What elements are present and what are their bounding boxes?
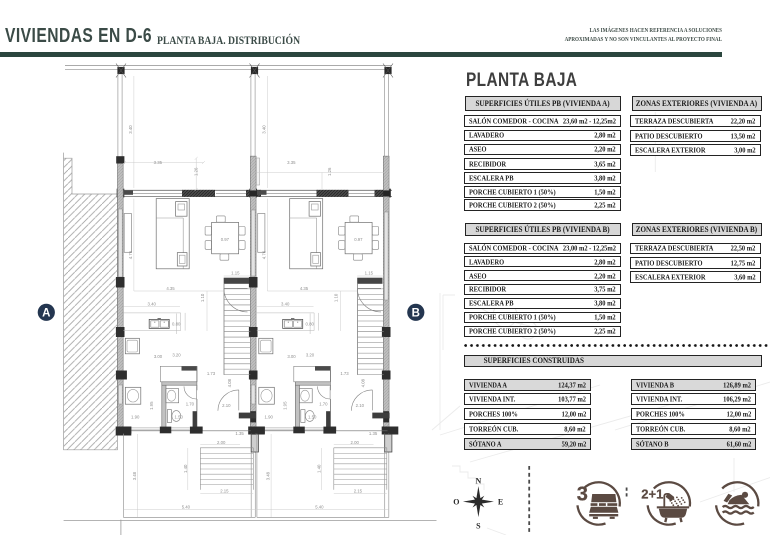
svg-text:5.40: 5.40: [182, 504, 191, 509]
svg-text:2.00: 2.00: [351, 440, 360, 445]
svg-text:S: S: [476, 522, 481, 531]
svg-text:1.73: 1.73: [207, 371, 216, 376]
svg-text:N: N: [476, 477, 482, 486]
svg-text:4.76: 4.76: [262, 250, 267, 259]
svg-text:3.40: 3.40: [128, 125, 133, 134]
svg-text:0.97: 0.97: [221, 237, 230, 242]
svg-text:1.73: 1.73: [340, 371, 349, 376]
svg-text:1.26: 1.26: [327, 167, 332, 176]
svg-text:1.40: 1.40: [183, 464, 188, 473]
svg-text:B: B: [412, 308, 420, 320]
svg-text:1.50: 1.50: [175, 414, 184, 419]
svg-text:4.08: 4.08: [361, 378, 366, 387]
svg-text:3: 3: [577, 483, 588, 505]
svg-text:3.20: 3.20: [172, 352, 181, 357]
svg-text:2+1: 2+1: [641, 486, 663, 501]
svg-text:1.50: 1.50: [308, 414, 317, 419]
svg-text:1.10: 1.10: [333, 293, 338, 302]
svg-text:1.70: 1.70: [186, 402, 195, 407]
svg-text:3.35: 3.35: [154, 160, 163, 165]
svg-text:1.70: 1.70: [319, 402, 328, 407]
svg-text:4.35: 4.35: [166, 286, 175, 291]
svg-text:3.00: 3.00: [287, 354, 296, 359]
svg-text:A: A: [42, 308, 50, 320]
svg-text:1.90: 1.90: [265, 414, 274, 419]
svg-text:2.10: 2.10: [356, 403, 365, 408]
svg-text:1.40: 1.40: [317, 464, 322, 473]
svg-text:2.10: 2.10: [222, 403, 231, 408]
svg-text:3.40: 3.40: [281, 301, 290, 306]
svg-text:3.00: 3.00: [154, 354, 163, 359]
svg-text:1.35: 1.35: [235, 431, 244, 436]
svg-text:3.20: 3.20: [306, 352, 315, 357]
svg-text:5.40: 5.40: [315, 504, 324, 509]
svg-text:1.95: 1.95: [283, 401, 288, 410]
svg-text:1.35: 1.35: [369, 431, 378, 436]
svg-text:2.15: 2.15: [354, 488, 363, 493]
svg-text:1.15: 1.15: [231, 270, 240, 275]
svg-text:0.80: 0.80: [172, 322, 181, 327]
svg-text:1.15: 1.15: [365, 270, 374, 275]
svg-text:3.48: 3.48: [265, 471, 270, 480]
svg-text:3.48: 3.48: [132, 471, 137, 480]
svg-text:1.90: 1.90: [131, 414, 140, 419]
svg-text:1.95: 1.95: [149, 401, 154, 410]
svg-text:O: O: [453, 498, 459, 507]
svg-text:0.80: 0.80: [306, 322, 315, 327]
svg-text:3.40: 3.40: [148, 301, 157, 306]
svg-text:E: E: [498, 498, 503, 507]
svg-text:1.10: 1.10: [200, 293, 205, 302]
svg-text:2.15: 2.15: [220, 488, 229, 493]
svg-text:4.76: 4.76: [128, 250, 133, 259]
svg-text:0.97: 0.97: [354, 237, 363, 242]
svg-text:3.35: 3.35: [287, 160, 296, 165]
svg-text:3.40: 3.40: [262, 125, 267, 134]
svg-text:4.35: 4.35: [300, 286, 309, 291]
svg-text:4.08: 4.08: [227, 378, 232, 387]
svg-text:2.00: 2.00: [217, 440, 226, 445]
svg-text:1.26: 1.26: [194, 167, 199, 176]
